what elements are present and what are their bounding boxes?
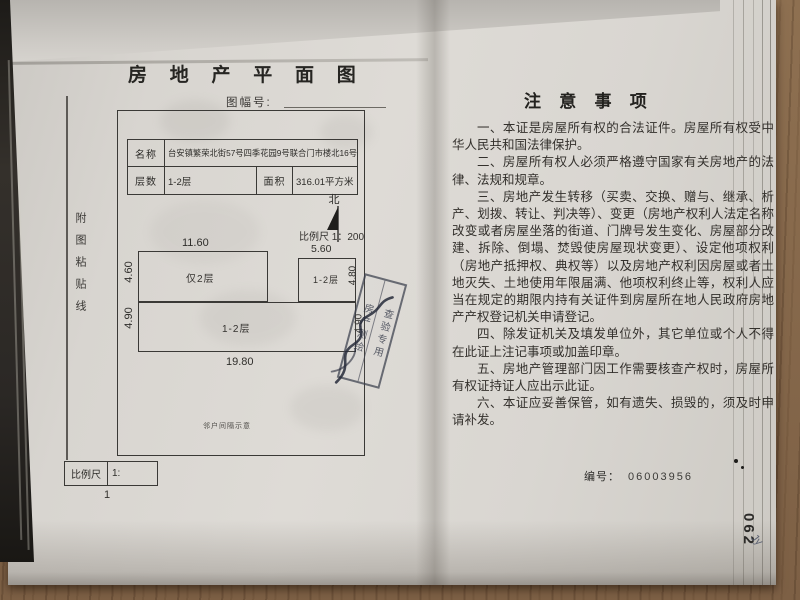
notice-title: 注 意 事 项 bbox=[524, 87, 654, 112]
figure-number-label: 图幅号: bbox=[226, 94, 272, 110]
area-label: 面积 bbox=[256, 167, 292, 194]
floors-value: 1-2层 bbox=[164, 167, 256, 194]
dim-left-upper: 4.60 bbox=[123, 257, 135, 287]
serial-label: 编号： bbox=[584, 471, 620, 483]
paste-line-label: 附图粘贴线 bbox=[72, 212, 88, 322]
notice-paragraph-6: 六、本证应妥善保管，如有遗失、损毁的，须及时申请补发。 bbox=[452, 395, 774, 429]
notice-paragraph-2: 二、房屋所有权人必须严格遵守国家有关房地产的法律、法规和规章。 bbox=[452, 154, 774, 188]
dim-top-right-width: 5.60 bbox=[311, 243, 331, 255]
notice-paragraph-3: 三、房地产发生转移（买卖、交换、赠与、继承、析产、划拨、转让、判决等）、变更（房… bbox=[452, 189, 774, 327]
dim-top-left-width: 11.60 bbox=[182, 237, 209, 249]
left-page-number: 1 bbox=[104, 489, 110, 501]
center-fold-shadow bbox=[416, 0, 450, 585]
room-label-lower: 1-2层 bbox=[222, 320, 250, 335]
notice-paragraph-5: 五、房地产管理部门因工作需要核查产权时，房屋所有权证持证人应出示此证。 bbox=[452, 361, 774, 395]
scale-box-value: 1: bbox=[107, 462, 157, 485]
signature-scribble bbox=[321, 283, 409, 401]
page-title: 房 地 产 平 面 图 bbox=[128, 60, 365, 87]
dim-left-lower: 4.90 bbox=[123, 303, 135, 333]
notice-paragraph-1: 一、本证是房屋所有权的合法证件。房屋所有权受中华人民共和国法律保护。 bbox=[452, 120, 774, 154]
scale-box-label: 比例尺 bbox=[65, 462, 107, 485]
notice-paragraph-4: 四、除发证机关及填发单位外，其它单位或个人不得在此证上注记事项或加盖印章。 bbox=[452, 326, 774, 360]
north-label: 北 bbox=[329, 193, 340, 206]
dim-bottom-width: 19.80 bbox=[226, 356, 254, 368]
plan-scale-note: 比例尺 1：200 bbox=[299, 228, 364, 243]
photo-of-document: 房 地 产 平 面 图 图幅号: 附图粘贴线 名称 台安镇繁荣北街57号四季花园… bbox=[0, 0, 800, 600]
plan-small-note: 邻户间隔示意 bbox=[203, 421, 251, 431]
serial-number: 编号：06003956 bbox=[584, 468, 693, 484]
floors-label: 层数 bbox=[128, 167, 164, 194]
name-label: 名称 bbox=[128, 140, 164, 166]
ink-dot bbox=[734, 459, 738, 463]
side-page-code: 062 bbox=[705, 513, 757, 535]
paste-line-rule bbox=[66, 96, 68, 460]
bottom-shadow bbox=[8, 520, 776, 585]
name-value: 台安镇繁荣北街57号四季花园9号联合门市楼北16号门市 bbox=[164, 140, 357, 166]
property-info-table: 名称 台安镇繁荣北街57号四季花园9号联合门市楼北16号门市 层数 1-2层 面… bbox=[127, 139, 358, 195]
area-value: 316.01平方米 bbox=[292, 167, 357, 194]
scale-box: 比例尺 1: bbox=[64, 461, 158, 486]
figure-number-blank-line bbox=[284, 107, 386, 108]
notice-body: 一、本证是房屋所有权的合法证件。房屋所有权受中华人民共和国法律保护。 二、房屋所… bbox=[452, 120, 774, 430]
room-label-upper-left: 仅2层 bbox=[186, 270, 215, 285]
serial-value: 06003956 bbox=[628, 471, 693, 483]
ink-dot bbox=[741, 466, 744, 469]
